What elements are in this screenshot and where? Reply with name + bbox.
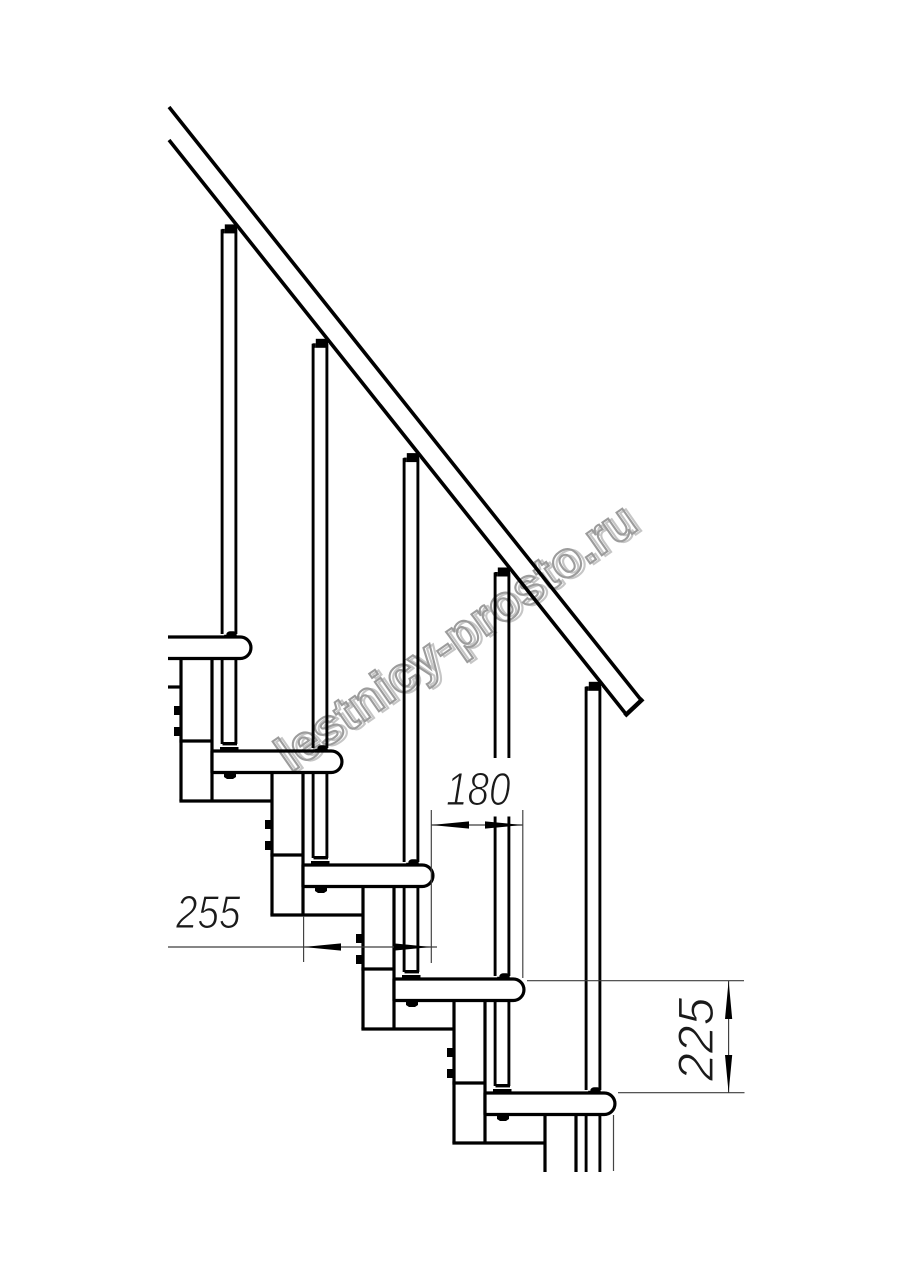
- svg-text:180: 180: [446, 764, 511, 815]
- svg-text:225: 225: [668, 997, 724, 1082]
- svg-text:255: 255: [175, 887, 241, 938]
